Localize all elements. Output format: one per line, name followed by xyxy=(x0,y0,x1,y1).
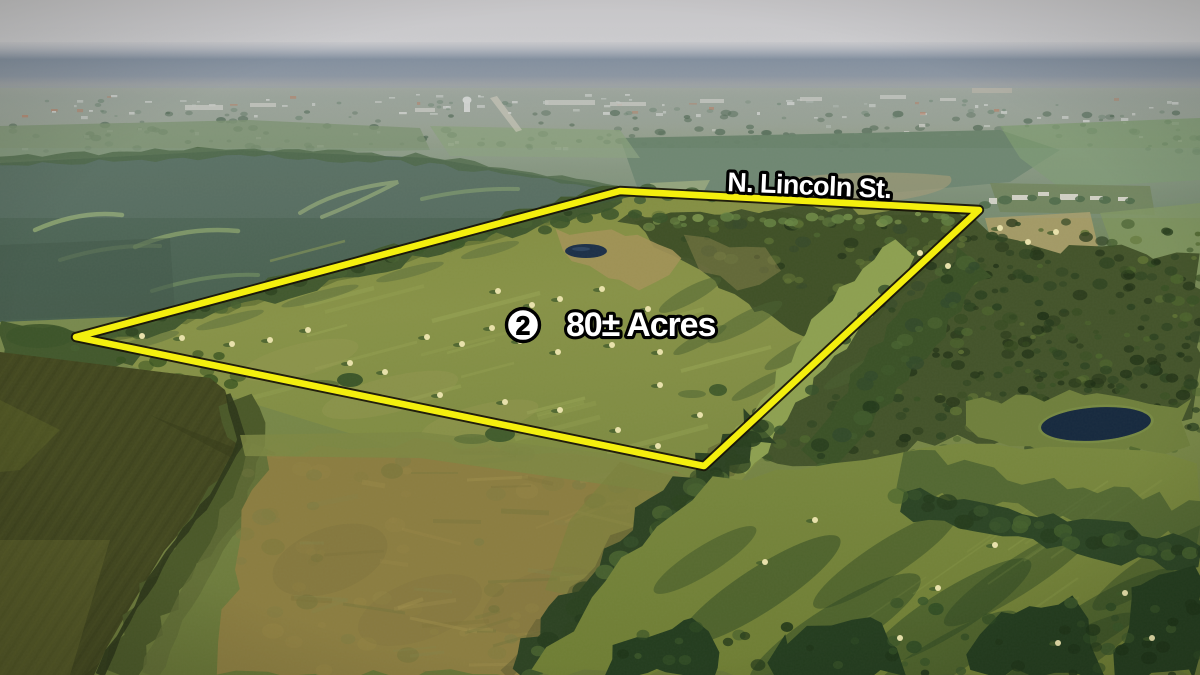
svg-text:80± Acres: 80± Acres xyxy=(566,306,715,344)
svg-text:2: 2 xyxy=(516,311,530,341)
